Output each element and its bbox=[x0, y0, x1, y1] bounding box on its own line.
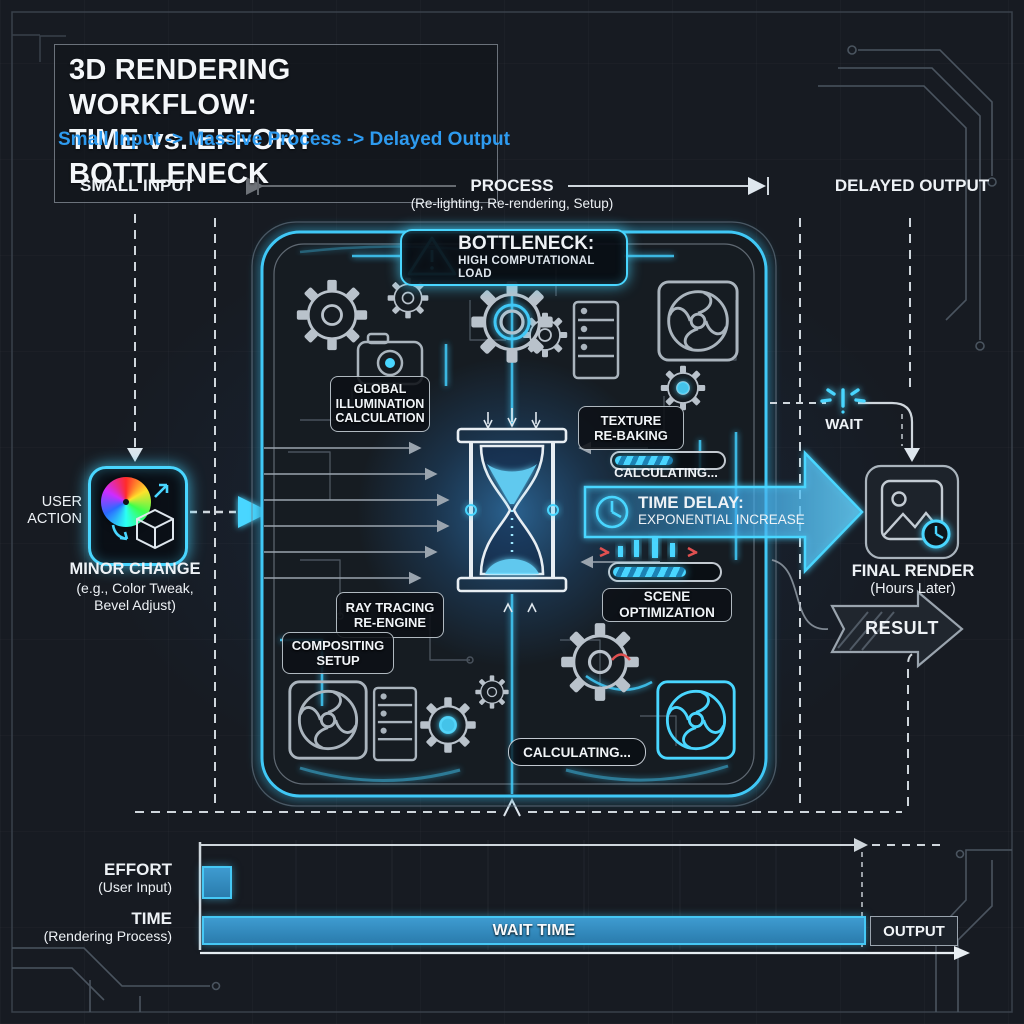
guide-arrow-up-center bbox=[504, 800, 520, 816]
effort-sublabel: (User Input) bbox=[40, 879, 172, 895]
lane-header-small-input: SMALL INPUT bbox=[62, 176, 212, 196]
progress-fill bbox=[615, 456, 673, 465]
effort-label: EFFORT bbox=[40, 860, 172, 880]
bottleneck-label: BOTTLENECK: bbox=[458, 234, 626, 255]
progress-bar-scene bbox=[608, 562, 722, 582]
bottleneck-sublabel: HIGH COMPUTATIONAL LOAD bbox=[458, 255, 626, 280]
node-compositing: COMPOSITING SETUP bbox=[282, 632, 394, 674]
input-connector bbox=[190, 496, 270, 528]
cube-icon bbox=[91, 469, 185, 563]
result-label: RESULT bbox=[862, 618, 942, 639]
page-subtitle: Small Input -> Massive Process -> Delaye… bbox=[58, 129, 510, 151]
lane-header-process: PROCESS bbox=[462, 176, 562, 196]
node-global-illumination: GLOBAL ILLUMINATION CALCULATION bbox=[330, 376, 430, 432]
time-bar: WAIT TIME bbox=[202, 916, 866, 945]
title-line1: 3D RENDERING WORKFLOW: bbox=[69, 53, 483, 123]
final-render-icon bbox=[866, 466, 958, 558]
effort-bar bbox=[202, 866, 232, 899]
final-render-sub: (Hours Later) bbox=[850, 581, 976, 598]
output-box: OUTPUT bbox=[870, 916, 958, 946]
node-texture-rebaking: TEXTURE RE-BAKING bbox=[578, 406, 684, 450]
guide-arrow-down-input bbox=[127, 448, 143, 462]
minor-change-box bbox=[88, 466, 188, 566]
minor-change-title: MINOR CHANGE bbox=[50, 560, 220, 579]
time-delay-sublabel: EXPONENTIAL INCREASE bbox=[638, 512, 808, 528]
lane-header-process-sub: (Re-lighting, Re-rendering, Setup) bbox=[392, 196, 632, 212]
time-delay-label: TIME DELAY: bbox=[638, 493, 808, 513]
minor-change-sub1: (e.g., Color Tweak, bbox=[50, 580, 220, 596]
wait-time-label: WAIT TIME bbox=[204, 918, 864, 943]
time-sublabel: (Rendering Process) bbox=[40, 928, 172, 944]
final-render-title: FINAL RENDER bbox=[850, 562, 976, 581]
calculating-bottom-pill: CALCULATING... bbox=[508, 738, 646, 766]
wait-label: WAIT bbox=[819, 416, 869, 433]
minor-change-sub2: Bevel Adjust) bbox=[50, 597, 220, 613]
lane-header-delayed-output: DELAYED OUTPUT bbox=[832, 176, 992, 196]
bottleneck-banner: BOTTLENECK: HIGH COMPUTATIONAL LOAD bbox=[400, 229, 628, 286]
infographic-canvas: 3D RENDERING WORKFLOW: TIME vs. EFFORT B… bbox=[0, 0, 1024, 1024]
calculating-top-label: CALCULATING... bbox=[606, 466, 726, 481]
node-scene-optimization: SCENE OPTIMIZATION bbox=[602, 588, 732, 622]
user-action-label: USER ACTION bbox=[16, 494, 82, 527]
time-label: TIME bbox=[40, 909, 172, 929]
wait-burst-icon bbox=[822, 390, 864, 414]
progress-fill bbox=[613, 567, 686, 577]
